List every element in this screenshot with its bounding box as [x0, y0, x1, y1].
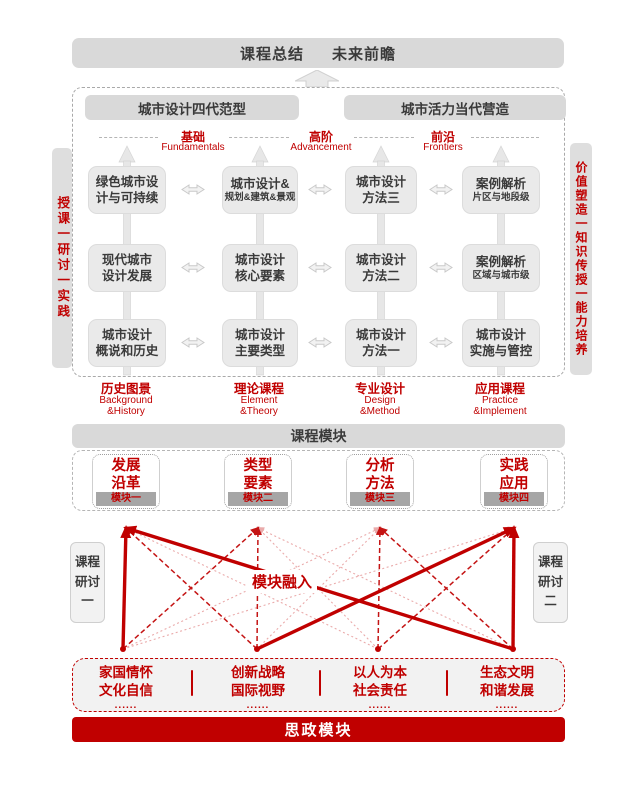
course-modules-bar: 课程模块: [72, 424, 565, 448]
module-integration-arrows: [60, 512, 580, 658]
course-box: 城市设计核心要素: [222, 244, 298, 292]
course-structure-diagram: 课程总结 未来前瞻 城市设计四代范型 城市活力当代营造 基础 Fundament…: [0, 0, 639, 796]
theme-item: 家国情怀文化自信 ......: [72, 664, 180, 711]
course-box: 现代城市设计发展: [88, 244, 166, 292]
double-arrow-icon: [429, 337, 453, 348]
double-arrow-icon: [429, 184, 453, 195]
course-box: 城市设计方法一: [345, 319, 417, 367]
double-arrow-icon: [181, 337, 205, 348]
seminar-box-1: 课程研讨一: [70, 542, 105, 623]
seminar-box-2: 课程研讨二: [533, 542, 568, 623]
module-tag: 模块四: [484, 492, 544, 506]
theme-separator: [319, 670, 321, 696]
summary-banner: 课程总结 未来前瞻: [72, 38, 564, 68]
course-box: 城市设计概说和历史: [88, 319, 166, 367]
paradigm-header-left: 城市设计四代范型: [85, 95, 299, 120]
theme-item: 生态文明和谐发展 ......: [453, 664, 561, 711]
level-dash-segment: [471, 137, 539, 138]
course-box: 城市设计&规划&建筑&景观: [222, 166, 298, 214]
double-arrow-icon: [429, 262, 453, 273]
summary-banner-left: 课程总结: [240, 43, 304, 64]
double-arrow-icon: [308, 262, 332, 273]
double-arrow-icon: [308, 184, 332, 195]
level-dash-segment: [99, 137, 158, 138]
course-box: 绿色城市设计与可持续: [88, 166, 166, 214]
level-label-fundamentals-en: Fundamentals: [148, 142, 238, 153]
education-goal-sidebar: 价值塑造一知识传授一能力培养: [570, 143, 592, 375]
course-box: 案例解析片区与地段级: [462, 166, 540, 214]
course-box: 案例解析区域与城市级: [462, 244, 540, 292]
module-tag: 模块一: [96, 492, 156, 506]
level-dash-segment: [354, 137, 414, 138]
level-label-frontiers-en: Frontiers: [398, 142, 488, 153]
education-goal-label: 价值塑造一知识传授一能力培养: [575, 161, 587, 357]
ideology-module-bar: 思政模块: [72, 717, 565, 742]
module-box-1: 发展沿革 模块一: [92, 454, 160, 509]
up-arrow-icon: [295, 70, 339, 87]
level-dash-segment: [229, 137, 289, 138]
theme-separator: [446, 670, 448, 696]
teaching-mode-label: 授课一研讨一实践: [56, 196, 69, 320]
course-box: 城市设计方法三: [345, 166, 417, 214]
double-arrow-icon: [181, 184, 205, 195]
column-footer: 应用课程 Practice &Implement: [445, 382, 555, 417]
double-arrow-icon: [181, 262, 205, 273]
module-box-2: 类型要素 模块二: [224, 454, 292, 509]
module-box-4: 实践应用 模块四: [480, 454, 548, 509]
double-arrow-icon: [308, 337, 332, 348]
theme-item: 以人为本社会责任 ......: [326, 664, 434, 711]
column-footer: 理论课程 Element &Theory: [204, 382, 314, 417]
teaching-mode-sidebar: 授课一研讨一实践: [52, 148, 72, 368]
course-box: 城市设计主要类型: [222, 319, 298, 367]
module-box-3: 分析方法 模块三: [346, 454, 414, 509]
module-fusion-label: 模块融入: [247, 570, 317, 593]
course-box: 城市设计实施与管控: [462, 319, 540, 367]
paradigm-header-right: 城市活力当代营造: [344, 95, 566, 120]
module-tag: 模块三: [350, 492, 410, 506]
course-box: 城市设计方法二: [345, 244, 417, 292]
module-tag: 模块二: [228, 492, 288, 506]
curriculum-panel: 城市设计四代范型 城市活力当代营造 基础 Fundamentals 高阶 Adv…: [72, 87, 565, 377]
theme-separator: [191, 670, 193, 696]
column-footer: 专业设计 Design &Method: [325, 382, 435, 417]
summary-banner-right: 未来前瞻: [332, 43, 396, 64]
theme-item: 创新战略国际视野 ......: [204, 664, 312, 711]
level-label-advancement-en: Advancement: [276, 142, 366, 153]
column-footer: 历史图景 Background &History: [71, 382, 181, 417]
